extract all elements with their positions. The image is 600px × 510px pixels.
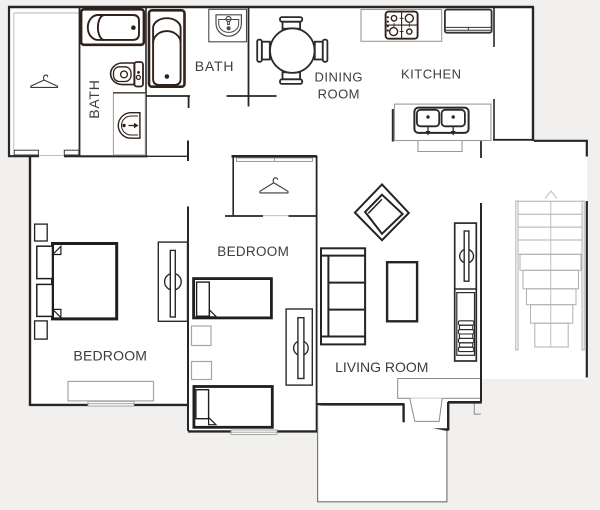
svg-text:DINING: DINING — [315, 69, 364, 84]
svg-text:KITCHEN: KITCHEN — [401, 67, 462, 82]
svg-text:BEDROOM: BEDROOM — [217, 244, 289, 259]
svg-text:BATH: BATH — [195, 58, 235, 74]
svg-text:ROOM: ROOM — [318, 87, 360, 102]
svg-text:BEDROOM: BEDROOM — [73, 348, 147, 364]
svg-text:LIVING ROOM: LIVING ROOM — [335, 359, 428, 375]
svg-text:BATH: BATH — [86, 79, 102, 119]
